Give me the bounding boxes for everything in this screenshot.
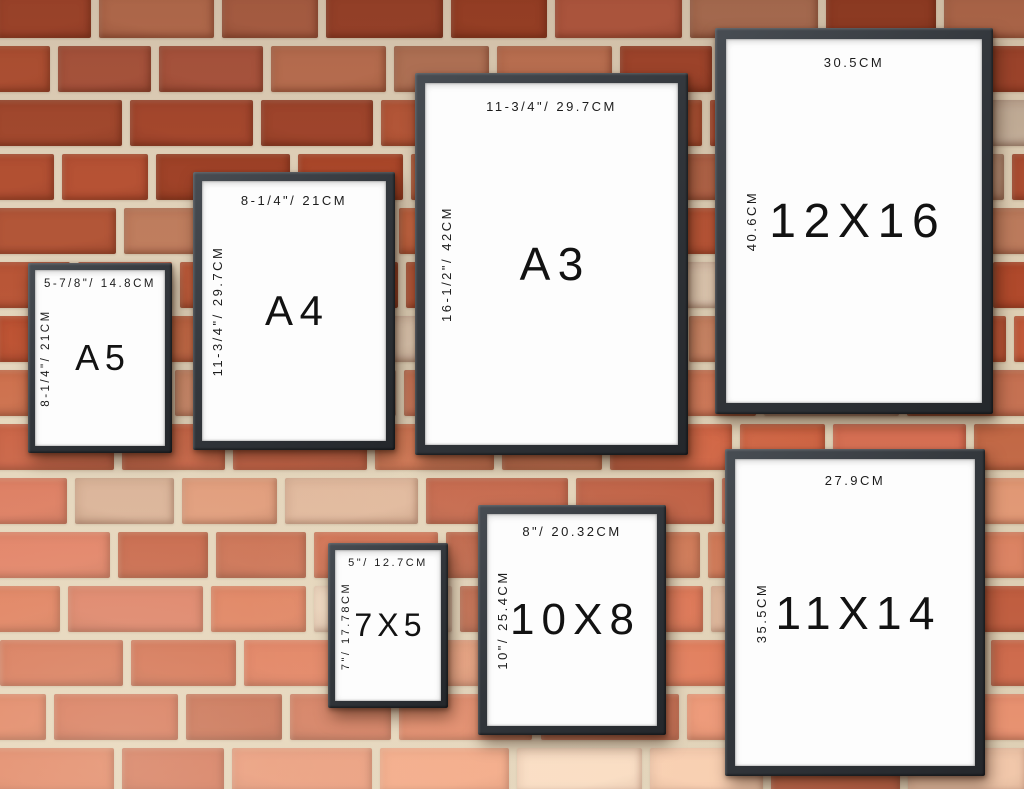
- brick: [0, 478, 67, 524]
- brick: [0, 748, 114, 789]
- brick: [285, 478, 419, 524]
- brick: [130, 100, 253, 146]
- brick: [380, 748, 509, 789]
- brick: [118, 532, 208, 578]
- frame-a4: 8-1/4"/ 21CM 11-3/4"/ 29.7CM A4: [193, 172, 395, 450]
- frame-11x14-size-label: 11X14: [735, 459, 975, 766]
- brick: [62, 154, 148, 200]
- brick: [232, 748, 372, 789]
- brick: [99, 0, 214, 38]
- brick: [555, 0, 682, 38]
- frame-a3-size-label: A3: [425, 83, 678, 445]
- brick: [993, 262, 1024, 308]
- brick: [182, 478, 277, 524]
- frame-11x14: 27.9CM 35.5CM 11X14: [725, 449, 985, 776]
- brick: [991, 640, 1024, 686]
- frame-10x8: 8"/ 20.32CM 10"/ 25.4CM 10X8: [478, 505, 666, 735]
- frame-a3-paper: 11-3/4"/ 29.7CM 16-1/2"/ 42CM A3: [425, 83, 678, 445]
- brick: [0, 46, 50, 92]
- frame-a4-size-label: A4: [202, 181, 386, 441]
- frame-7x5: 5"/ 12.7CM 7"/ 17.78CM 7X5: [328, 543, 448, 708]
- brick: [1014, 316, 1024, 362]
- brick: [222, 0, 317, 38]
- brick: [186, 694, 282, 740]
- brick: [517, 748, 642, 789]
- frame-7x5-paper: 5"/ 12.7CM 7"/ 17.78CM 7X5: [335, 550, 441, 701]
- frame-a4-paper: 8-1/4"/ 21CM 11-3/4"/ 29.7CM A4: [202, 181, 386, 441]
- frame-a3: 11-3/4"/ 29.7CM 16-1/2"/ 42CM A3: [415, 73, 688, 455]
- frame-12x16-paper: 30.5CM 40.6CM 12X16: [726, 39, 982, 403]
- frame-7x5-size-label: 7X5: [335, 550, 441, 701]
- brick: [271, 46, 387, 92]
- brick: [1012, 154, 1024, 200]
- brick: [326, 0, 443, 38]
- frame-12x16-size-label: 12X16: [726, 39, 982, 403]
- brick: [211, 586, 305, 632]
- brick: [75, 478, 175, 524]
- brick: [68, 586, 203, 632]
- frame-10x8-paper: 8"/ 20.32CM 10"/ 25.4CM 10X8: [487, 514, 657, 726]
- brick: [244, 640, 341, 686]
- frame-a5: 5-7/8"/ 14.8CM 8-1/4"/ 21CM A5: [28, 263, 172, 453]
- brick: [0, 532, 110, 578]
- brick: [54, 694, 178, 740]
- frame-a5-size-label: A5: [35, 270, 165, 446]
- brick: [216, 532, 306, 578]
- frame-11x14-paper: 27.9CM 35.5CM 11X14: [735, 459, 975, 766]
- brick: [159, 46, 262, 92]
- brick: [0, 640, 123, 686]
- brick: [0, 370, 31, 416]
- frame-10x8-size-label: 10X8: [487, 514, 657, 726]
- brick: [261, 100, 372, 146]
- brick: [122, 748, 224, 789]
- brick: [451, 0, 547, 38]
- brick: [0, 586, 60, 632]
- brick: [0, 694, 46, 740]
- brick: [0, 154, 54, 200]
- brick: [0, 0, 91, 38]
- brick: [0, 208, 116, 254]
- brick: [58, 46, 151, 92]
- brick: [0, 100, 122, 146]
- frame-a5-paper: 5-7/8"/ 14.8CM 8-1/4"/ 21CM A5: [35, 270, 165, 446]
- frame-size-chart: 5-7/8"/ 14.8CM 8-1/4"/ 21CM A5 8-1/4"/ 2…: [0, 0, 1024, 789]
- brick: [131, 640, 235, 686]
- frame-12x16: 30.5CM 40.6CM 12X16: [715, 28, 993, 414]
